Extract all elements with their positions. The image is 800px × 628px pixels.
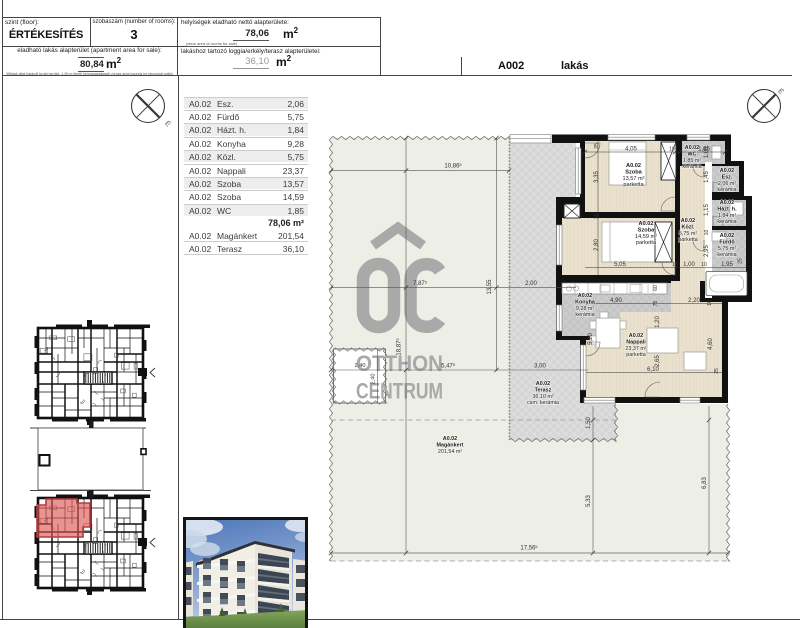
svg-text:A0.02: A0.02	[720, 168, 734, 174]
svg-text:1,95: 1,95	[721, 262, 733, 268]
svg-text:Szoba: Szoba	[625, 169, 642, 175]
svg-text:5,05: 5,05	[614, 262, 626, 268]
svg-text:201,54 m²: 201,54 m²	[438, 449, 462, 455]
svg-text:25: 25	[594, 143, 600, 149]
svg-text:1,50: 1,50	[586, 417, 592, 429]
svg-text:75: 75	[653, 301, 659, 307]
svg-text:9,28 m²: 9,28 m²	[576, 306, 594, 312]
svg-text:csm. kerámia: csm. kerámia	[527, 400, 559, 406]
svg-text:60: 60	[653, 285, 659, 291]
svg-text:kerámia: kerámia	[575, 312, 594, 318]
svg-text:23,37 m²: 23,37 m²	[625, 346, 646, 352]
svg-text:parketta: parketta	[678, 237, 697, 243]
svg-text:A0.02: A0.02	[681, 218, 695, 224]
svg-text:A0.02: A0.02	[639, 221, 654, 227]
svg-text:Szoba: Szoba	[638, 227, 655, 233]
svg-text:2,95: 2,95	[704, 245, 710, 257]
svg-text:1,20: 1,20	[655, 316, 661, 328]
svg-text:2,80: 2,80	[594, 239, 600, 251]
svg-text:25: 25	[738, 258, 744, 264]
svg-text:1,00: 1,00	[704, 146, 710, 158]
svg-text:Házt. h.: Házt. h.	[717, 206, 737, 212]
svg-text:6,83: 6,83	[702, 477, 708, 489]
svg-text:13,55: 13,55	[487, 279, 493, 295]
svg-text:36,10 m²: 36,10 m²	[532, 394, 553, 400]
svg-text:5,75 m²: 5,75 m²	[679, 231, 697, 237]
svg-text:Terasz: Terasz	[535, 387, 552, 393]
svg-text:10: 10	[594, 214, 600, 220]
svg-text:A0.02: A0.02	[685, 145, 699, 151]
svg-text:Magánkert: Magánkert	[437, 442, 464, 448]
svg-text:2,00: 2,00	[525, 281, 537, 287]
svg-text:25: 25	[714, 368, 720, 374]
svg-text:kerámia: kerámia	[717, 252, 736, 258]
svg-text:2,65: 2,65	[655, 355, 661, 367]
svg-text:17,565: 17,565	[520, 544, 537, 552]
svg-text:4,05: 4,05	[625, 147, 637, 153]
svg-text:1,15: 1,15	[704, 204, 710, 216]
svg-text:4,60: 4,60	[708, 338, 714, 350]
svg-text:1,00: 1,00	[683, 262, 695, 268]
svg-text:5,75 m²: 5,75 m²	[718, 246, 736, 252]
svg-text:2,06 m²: 2,06 m²	[718, 181, 736, 187]
svg-text:13,57 m²: 13,57 m²	[622, 176, 644, 182]
svg-text:A0.02: A0.02	[626, 163, 641, 169]
svg-text:CENTRUM: CENTRUM	[356, 379, 443, 404]
svg-text:6,10: 6,10	[647, 367, 659, 373]
svg-text:kerámia: kerámia	[717, 187, 736, 193]
svg-text:14,59 m²: 14,59 m²	[635, 234, 657, 240]
svg-text:10: 10	[704, 230, 710, 236]
svg-text:10: 10	[701, 262, 707, 268]
svg-text:Esz.: Esz.	[722, 174, 733, 180]
svg-text:1,45: 1,45	[704, 171, 710, 183]
svg-text:A0.02: A0.02	[443, 436, 457, 442]
svg-text:Konyha: Konyha	[575, 299, 596, 305]
svg-text:Fürdő: Fürdő	[719, 239, 735, 245]
svg-text:2,20: 2,20	[688, 298, 700, 304]
svg-text:kerámia: kerámia	[717, 219, 736, 225]
svg-text:A0.02: A0.02	[720, 200, 734, 206]
svg-text:1,85 m²: 1,85 m²	[683, 158, 701, 164]
svg-text:5,33: 5,33	[586, 495, 592, 507]
svg-text:10: 10	[672, 262, 678, 268]
svg-text:A0.02: A0.02	[629, 333, 643, 339]
svg-text:5,20: 5,20	[588, 333, 594, 345]
svg-text:Közl.: Közl.	[682, 224, 695, 230]
svg-text:É: É	[163, 119, 173, 129]
svg-text:10: 10	[669, 147, 675, 153]
svg-text:A0.02: A0.02	[536, 381, 550, 387]
svg-text:4,90: 4,90	[610, 298, 622, 304]
svg-text:2,40: 2,40	[355, 363, 366, 369]
svg-text:A0.02: A0.02	[578, 293, 592, 299]
svg-text:3,35: 3,35	[594, 171, 600, 183]
svg-text:parketta: parketta	[636, 240, 657, 246]
svg-text:parketta: parketta	[626, 352, 645, 358]
svg-text:parketta: parketta	[623, 182, 644, 188]
svg-text:10,865: 10,865	[444, 162, 461, 170]
svg-text:3,00: 3,00	[534, 364, 546, 370]
svg-text:Nappali: Nappali	[626, 339, 646, 345]
svg-text:kerámia: kerámia	[682, 164, 701, 170]
svg-text:A0.02: A0.02	[720, 233, 734, 239]
svg-text:1,84 m²: 1,84 m²	[718, 213, 736, 219]
svg-text:WC: WC	[688, 151, 697, 157]
svg-text:18,875: 18,875	[395, 338, 403, 355]
svg-text:10: 10	[707, 300, 713, 306]
svg-text:2,40: 2,40	[371, 374, 377, 385]
